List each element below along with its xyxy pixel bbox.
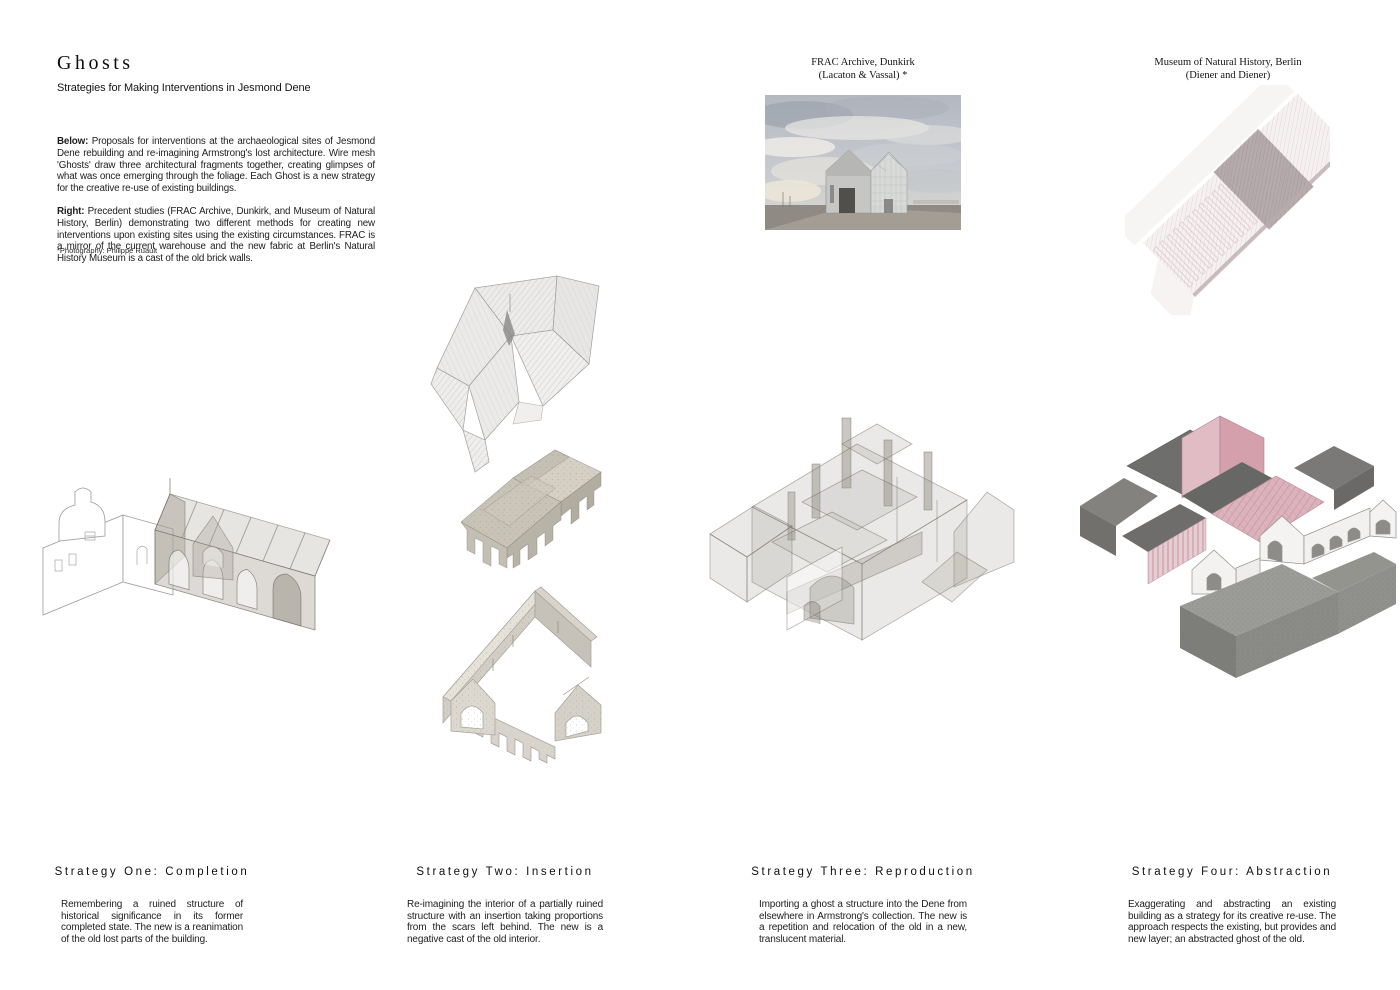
strategy-two-heading: Strategy Two: Insertion bbox=[395, 866, 615, 878]
strategy-three-description: Importing a ghost a structure into the D… bbox=[759, 899, 967, 945]
presentation-board: Ghosts Strategies for Making Interventio… bbox=[0, 0, 1400, 990]
strategy-four-description: Exaggerating and abstracting an existing… bbox=[1128, 899, 1336, 945]
strategy-one-heading: Strategy One: Completion bbox=[40, 866, 264, 878]
strategy-one-description: Remembering a ruined structure of histor… bbox=[61, 899, 243, 945]
strategy-one-drawing bbox=[25, 432, 345, 657]
frac-archive-photo bbox=[765, 95, 961, 230]
frac-caption: FRAC Archive, Dunkirk (Lacaton & Vassal)… bbox=[765, 56, 961, 82]
intro-paragraph-below: Below: Proposals for interventions at th… bbox=[57, 136, 375, 195]
strategy-four-drawing bbox=[1072, 408, 1397, 693]
intro-right-body: Precedent studies (FRAC Archive, Dunkirk… bbox=[57, 206, 375, 264]
museum-caption-line1: Museum of Natural History, Berlin bbox=[1128, 56, 1328, 69]
strategy-two-description: Re-imagining the interior of a partially… bbox=[407, 899, 603, 945]
museum-facade-drawing bbox=[1125, 85, 1330, 315]
museum-caption-line2: (Diener and Diener) bbox=[1128, 69, 1328, 82]
strategy-one-column: Strategy One: Completion Remembering a r… bbox=[40, 866, 264, 945]
strategy-two-ruin-walls-drawing bbox=[413, 573, 638, 798]
photography-credit: *Photography: Philippe Ruault bbox=[57, 246, 157, 255]
strategy-two-column: Strategy Two: Insertion Re-imagining the… bbox=[395, 866, 615, 945]
strategy-three-heading: Strategy Three: Reproduction bbox=[750, 866, 976, 878]
frac-caption-line2: (Lacaton & Vassal) * bbox=[765, 69, 961, 82]
intro-below-body: Proposals for interventions at the archa… bbox=[57, 136, 375, 194]
page-title: Ghosts bbox=[57, 52, 134, 75]
strategy-three-column: Strategy Three: Reproduction Importing a… bbox=[750, 866, 976, 945]
strategy-three-drawing bbox=[692, 382, 1017, 672]
strategy-four-heading: Strategy Four: Abstraction bbox=[1118, 866, 1346, 878]
strategy-four-column: Strategy Four: Abstraction Exaggerating … bbox=[1118, 866, 1346, 945]
intro-paragraph-right: Right: Precedent studies (FRAC Archive, … bbox=[57, 206, 375, 265]
intro-right-label: Right: bbox=[57, 206, 84, 217]
frac-caption-line1: FRAC Archive, Dunkirk bbox=[765, 56, 961, 69]
intro-below-label: Below: bbox=[57, 136, 88, 147]
page-subtitle: Strategies for Making Interventions in J… bbox=[57, 82, 311, 94]
museum-caption: Museum of Natural History, Berlin (Diene… bbox=[1128, 56, 1328, 82]
